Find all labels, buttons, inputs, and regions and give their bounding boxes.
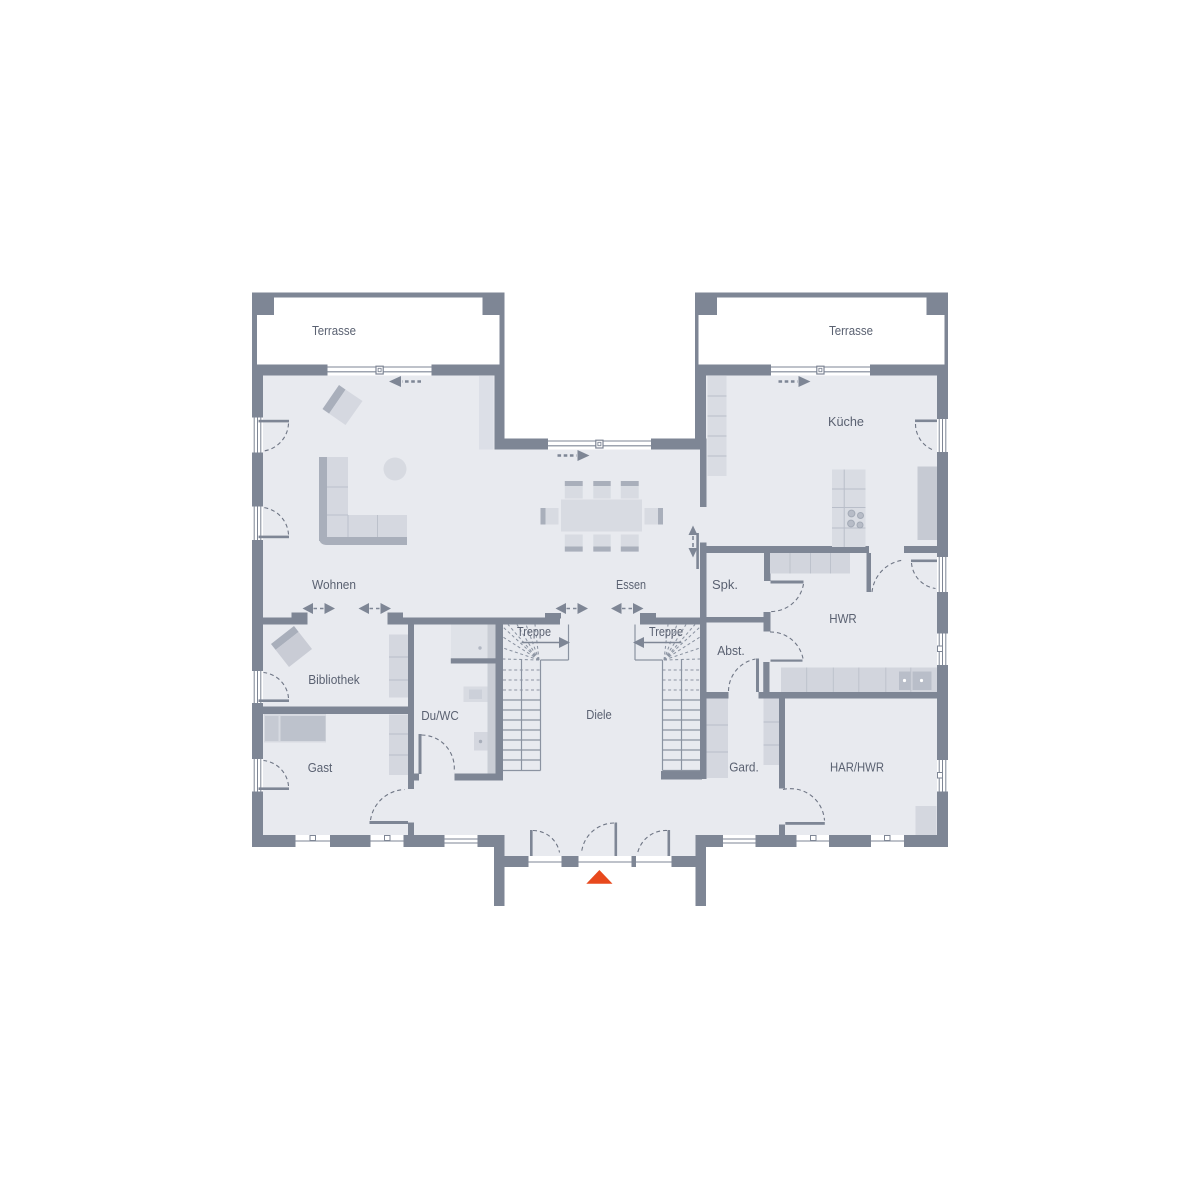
svg-text:Terrasse: Terrasse bbox=[829, 323, 873, 338]
svg-text:HAR/HWR: HAR/HWR bbox=[830, 760, 884, 775]
svg-text:Wohnen: Wohnen bbox=[312, 577, 356, 592]
svg-text:Bibliothek: Bibliothek bbox=[308, 672, 360, 687]
svg-text:Gast: Gast bbox=[308, 760, 333, 775]
svg-text:Gard.: Gard. bbox=[729, 760, 759, 775]
svg-text:Du/WC: Du/WC bbox=[421, 708, 459, 723]
svg-text:Essen: Essen bbox=[616, 577, 646, 592]
svg-text:Treppe: Treppe bbox=[649, 625, 683, 639]
svg-text:Terrasse: Terrasse bbox=[312, 323, 356, 338]
svg-text:HWR: HWR bbox=[829, 611, 857, 626]
svg-text:Diele: Diele bbox=[586, 707, 612, 722]
svg-text:Abst.: Abst. bbox=[717, 643, 745, 658]
svg-text:Spk.: Spk. bbox=[712, 577, 738, 592]
svg-text:Treppe: Treppe bbox=[517, 625, 551, 639]
svg-text:Küche: Küche bbox=[828, 414, 864, 429]
